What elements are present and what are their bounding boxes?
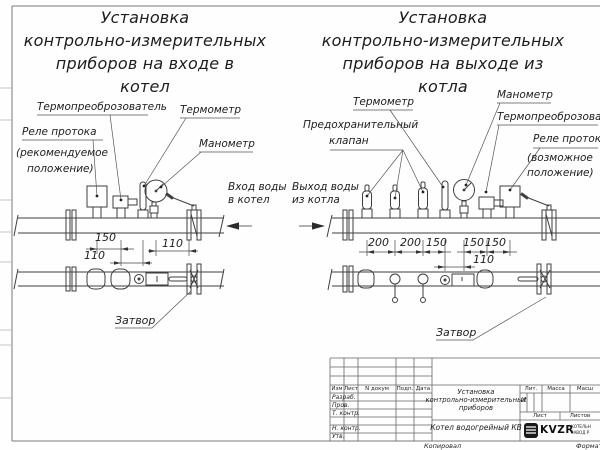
inlet-valve-label: Затвор (115, 315, 155, 326)
outlet-thermometer (440, 181, 450, 218)
left-stamp-cells (0, 88, 12, 398)
titleblock-col-list: Лист (344, 387, 358, 393)
titleblock-doc-title: Установка (458, 389, 495, 396)
inlet-title-line: приборов на входе в (56, 56, 234, 72)
outlet-flow-relay-label: Реле протока (533, 134, 600, 145)
outlet-title-line: контрольно-измерительных (322, 33, 564, 49)
outlet-dim-110: 110 (473, 254, 494, 265)
titleblock-row-prov: Пров. (332, 403, 349, 409)
outlet-safety-valve-label: Предохранительный (303, 120, 418, 131)
outlet-valve-label: Затвор (436, 327, 476, 338)
format-label: Формат (576, 443, 600, 450)
outlet-title-line: Установка (399, 10, 488, 26)
titleblock-col-izm: Изм (331, 387, 342, 393)
outlet-dim-200: 200 (400, 237, 421, 248)
copied-label: Копировал (424, 443, 461, 450)
inlet-top-view (14, 264, 224, 294)
outlet-safety-valve-3 (418, 182, 428, 218)
kvzr-logo-text: KVZR (540, 425, 574, 436)
titleblock-col-data: Дата (416, 387, 430, 393)
outlet-safety-valve-2 (390, 185, 400, 218)
outlet-flow-relay-label: (возможное (527, 153, 593, 164)
inlet-title-line: Установка (101, 10, 190, 26)
titleblock-row-utv: Утв. (332, 434, 345, 440)
outlet-safety-valve-label: клапан (329, 136, 369, 147)
drawing-sheet: Установка контрольно-измерительных прибо… (0, 0, 600, 450)
titleblock-row-razrab: Разраб. (332, 395, 356, 401)
outlet-flow-direction-label: из котла (292, 195, 340, 206)
outlet-dim-150: 150 (463, 237, 484, 248)
titleblock-mass-label: Масса (547, 387, 565, 393)
kvzr-logo-subtext: КОТЕЛЬН (571, 425, 591, 429)
outlet-thermometer-label: Термометр (353, 97, 414, 108)
inlet-dim-110: 110 (84, 250, 105, 261)
inlet-flow-relay-label: положение) (27, 164, 94, 175)
inlet-dim-150: 150 (95, 232, 116, 243)
inlet-flow-relay-label: Реле протока (22, 127, 97, 138)
inlet-thermometer (138, 182, 148, 218)
inlet-title-line: котел (120, 79, 170, 95)
outlet-flow-direction-label: Выход воды (292, 182, 359, 193)
outlet-flow-arrow (299, 222, 325, 229)
outlet-manometer-label: Манометр (497, 90, 553, 101)
inlet-title-line: контрольно-измерительных (24, 33, 266, 49)
outlet-safety-valve-1 (362, 185, 372, 218)
inlet-transducer-label: Термопреоброзователь (37, 102, 167, 113)
titleblock-scale-label: Масш (577, 387, 593, 393)
titleblock-doc-title: приборов (459, 405, 493, 412)
inlet-flow-arrow (226, 222, 252, 229)
outlet-flange (343, 210, 353, 240)
titleblock-doc-title: контрольно-измерительных (426, 397, 527, 404)
titleblock-sheets-label: Листов (570, 414, 591, 420)
outlet-title-line: котла (418, 79, 468, 95)
inlet-flow-relay (87, 186, 107, 218)
outlet-transducer-label: Термопреоброзователь (497, 112, 600, 123)
inlet-flow-direction-label: Вход воды (228, 182, 287, 193)
titleblock-lit-label: Лит. (525, 387, 538, 393)
outlet-flow-relay-label: положение) (527, 168, 594, 179)
outlet-title-line: приборов на выходе из (343, 56, 544, 72)
titleblock-sheet-label: Лист (533, 414, 547, 420)
inlet-flow-direction-label: в котел (228, 195, 270, 206)
titleblock-lit-value: И (521, 397, 526, 404)
outlet-dim-150: 150 (426, 237, 447, 248)
titleblock-col-podp: Подп. (397, 387, 414, 393)
titleblock-product-name: Котел водогрейный КВ (430, 424, 522, 432)
inlet-dim-110: 110 (162, 238, 183, 249)
outlet-manometer (454, 180, 475, 219)
inlet-side-view (14, 180, 252, 240)
outlet-thermo-transducer (479, 197, 503, 218)
inlet-thermometer-label: Термометр (180, 105, 241, 116)
outlet-dim-200: 200 (368, 237, 389, 248)
titleblock-row-nkontr: Н. контр. (332, 426, 361, 432)
outlet-dim-150: 150 (485, 237, 506, 248)
kvzr-logo-emblem (524, 423, 538, 438)
titleblock-row-tkontr: Т. контр. (332, 411, 360, 417)
kvzr-logo-subtext: ЗАВОД Р (571, 431, 589, 435)
inlet-flange (66, 210, 76, 240)
inlet-thermo-transducer (113, 196, 137, 218)
inlet-flow-relay-label: (рекомендуемое (16, 148, 108, 159)
titleblock-col-ndocum: N докум (365, 387, 389, 393)
inlet-manometer-label: Манометр (199, 139, 255, 150)
